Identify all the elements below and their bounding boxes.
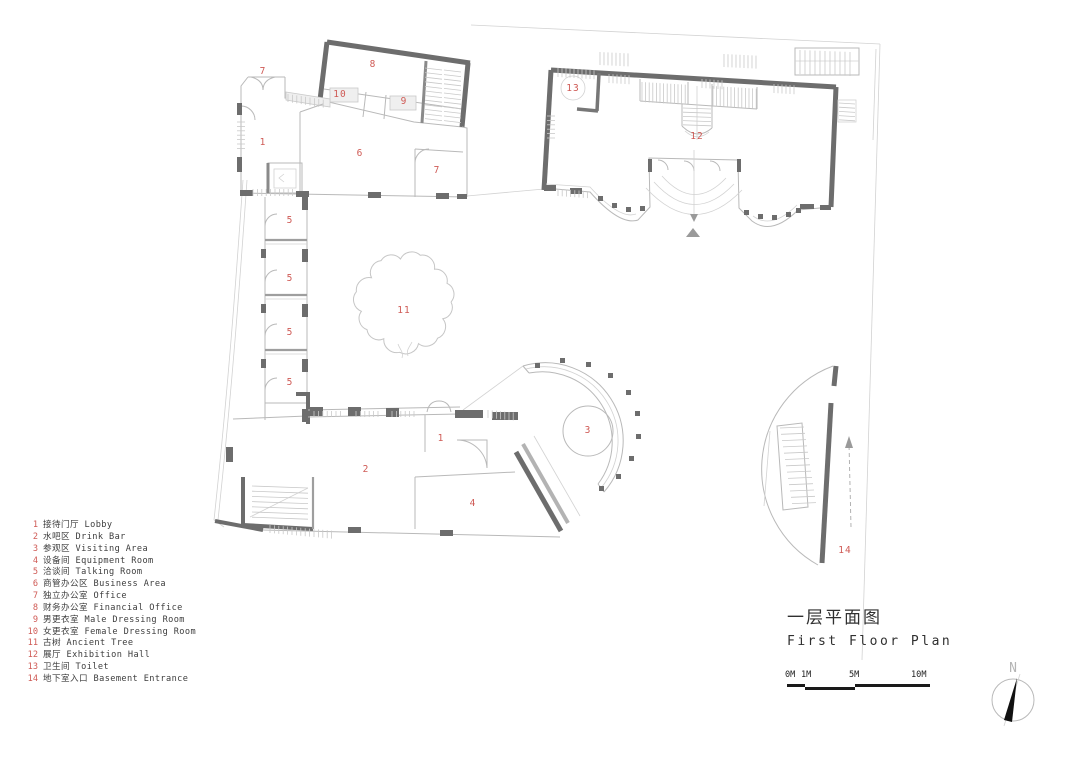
wall-segment (608, 373, 613, 378)
room-number-label: 12 (690, 131, 703, 142)
hatch-line (444, 70, 461, 72)
hatch-line (444, 121, 461, 123)
hatch-line (425, 100, 442, 102)
hatch-line (792, 503, 816, 504)
hatch-line (444, 75, 461, 77)
hatch-line (839, 103, 855, 104)
wall-segment (786, 212, 791, 217)
legend-item-number: 14 (24, 674, 38, 686)
room-number-label: 7 (260, 66, 267, 77)
room-labels: 781091312167555511312414 (260, 59, 852, 556)
legend-item: 13卫生间 Toilet (24, 662, 196, 674)
wall-segment (348, 407, 361, 416)
hatch-line (425, 114, 442, 116)
wall-segment (635, 411, 640, 416)
hatch-line (790, 490, 814, 491)
legend-item-label: 财务办公室 Financial Office (43, 603, 183, 615)
wall-segment (737, 159, 741, 172)
wall-segment (457, 194, 467, 199)
room-number-label: 5 (287, 215, 294, 226)
legend-item-number: 13 (24, 662, 38, 674)
wall-segment (348, 527, 361, 533)
wall-segment (302, 197, 308, 210)
legend-item-label: 接待门厅 Lobby (43, 520, 112, 532)
wall-segment (612, 203, 617, 208)
hatch-line (252, 486, 308, 488)
hatch-line (252, 512, 308, 514)
wall-segment (820, 205, 831, 210)
wall-segment (455, 410, 483, 418)
talking-room-corridor (265, 197, 308, 424)
scale-segment-2 (805, 687, 855, 690)
hatch-line (444, 84, 461, 86)
room-number-label: 8 (370, 59, 377, 70)
wall-segment (800, 204, 814, 209)
scale-segment-3 (855, 684, 930, 687)
wall-segment (261, 359, 266, 368)
legend-item-label: 独立办公室 Office (43, 591, 127, 603)
hatch-line (786, 465, 810, 466)
page-title-en: First Floor Plan (787, 634, 952, 649)
hatch-line (839, 107, 855, 108)
title-block: 一层平面图 First Floor Plan (787, 603, 952, 649)
wall-segment (302, 409, 308, 422)
basement-entrance (762, 366, 853, 565)
legend-item-number: 10 (24, 627, 38, 639)
legend-item-label: 古树 Ancient Tree (43, 638, 133, 650)
wall-segment (648, 159, 652, 172)
wall-segment (626, 390, 631, 395)
room-number-label: 14 (838, 545, 851, 556)
hatch-line (683, 112, 711, 113)
legend-item: 9男更衣室 Male Dressing Room (24, 615, 196, 627)
wall-segment (758, 214, 763, 219)
legend-item: 12展厅 Exhibition Hall (24, 650, 196, 662)
legend-item-number: 7 (24, 591, 38, 603)
hatch-line (425, 119, 442, 121)
page-root: 781091312167555511312414 N 1接待门厅 Lobby2水… (0, 0, 1074, 757)
scale-label-5m: 5M (849, 670, 859, 680)
legend-item-label: 商管办公区 Business Area (43, 579, 166, 591)
hatch-line (444, 107, 461, 109)
wall-segment (261, 304, 266, 313)
wall-segment (302, 359, 308, 372)
legend-item: 2水吧区 Drink Bar (24, 532, 196, 544)
legend-item-number: 1 (24, 520, 38, 532)
north-arrow: N (992, 661, 1034, 726)
hatch-line (444, 79, 461, 81)
hatch-line (683, 108, 711, 109)
room-number-label: 9 (401, 96, 408, 107)
page-title-zh: 一层平面图 (787, 603, 952, 628)
wall-segment (744, 210, 749, 215)
hatch-line (425, 73, 442, 75)
scale-label-0m: 0M (785, 670, 795, 680)
hatch-line (787, 471, 811, 472)
legend-item-number: 5 (24, 567, 38, 579)
legend-item-number: 4 (24, 556, 38, 568)
legend-item: 10女更衣室 Female Dressing Room (24, 627, 196, 639)
legend-item-label: 女更衣室 Female Dressing Room (43, 627, 196, 639)
hatch-line (683, 121, 711, 122)
room-number-label: 1 (260, 137, 267, 148)
wall-segment (440, 530, 453, 536)
compass-needle-icon (1004, 678, 1017, 722)
wall-segment (302, 304, 308, 317)
legend-item: 5洽谈间 Talking Room (24, 567, 196, 579)
legend-item: 8财务办公室 Financial Office (24, 603, 196, 615)
room-number-label: 1 (438, 433, 445, 444)
wall-segment (302, 249, 308, 262)
legend-item-number: 6 (24, 579, 38, 591)
legend-item-number: 12 (24, 650, 38, 662)
hatch-line (791, 496, 815, 497)
legend-item-label: 设备间 Equipment Room (43, 556, 154, 568)
wall-segment (598, 196, 603, 201)
main-office-block (241, 77, 544, 197)
legend-item-number: 11 (24, 638, 38, 650)
hatch-line (425, 82, 442, 84)
hatch-line (252, 517, 308, 519)
room-number-label: 10 (333, 89, 346, 100)
wall-segment (629, 456, 634, 461)
wall-segment (436, 193, 449, 199)
hatch-line (782, 440, 806, 441)
scale-bar: 0M 1M 5M 10M (787, 670, 933, 696)
wall-segment (772, 215, 777, 220)
room-number-label: 5 (287, 377, 294, 388)
wall-segment (237, 157, 242, 172)
wall-segment (636, 434, 641, 439)
wall-segment (560, 358, 565, 363)
legend-item-label: 展厅 Exhibition Hall (43, 650, 150, 662)
hatch-line (425, 77, 442, 79)
hatch-line (839, 111, 855, 112)
wall-segment (226, 447, 233, 462)
room-number-label: 5 (287, 327, 294, 338)
hatch-line (252, 507, 308, 509)
hatch-line (780, 427, 804, 428)
hatch-line (425, 86, 442, 88)
hatch-line (425, 96, 442, 98)
wall-segment (386, 408, 399, 417)
legend-item-number: 9 (24, 615, 38, 627)
hatch-line (425, 68, 442, 70)
room-number-label: 2 (363, 464, 370, 475)
hatch-line (444, 111, 461, 113)
hatch-line (252, 496, 308, 498)
wall-segment (261, 249, 266, 258)
hatch-line (789, 484, 813, 485)
wall-segment (570, 188, 582, 194)
wall-segment (535, 363, 540, 368)
hatch-line (444, 88, 461, 90)
room-number-label: 7 (434, 165, 441, 176)
wall-segment (640, 206, 645, 211)
legend-item-label: 参观区 Visiting Area (43, 544, 148, 556)
wall-segment (310, 407, 323, 416)
hatch-line (425, 109, 442, 111)
legend: 1接待门厅 Lobby2水吧区 Drink Bar3参观区 Visiting A… (24, 520, 196, 686)
legend-item: 14地下室入口 Basement Entrance (24, 674, 196, 686)
wall-segment (544, 185, 556, 191)
room-number-label: 13 (566, 83, 579, 94)
hatch-line (444, 98, 461, 100)
wall-segment (626, 207, 631, 212)
legend-item-number: 3 (24, 544, 38, 556)
wall-segment (296, 191, 309, 197)
legend-item: 3参观区 Visiting Area (24, 544, 196, 556)
hatch-line (683, 125, 711, 126)
wall-segment (237, 103, 242, 115)
room-number-label: 6 (357, 148, 364, 159)
scale-label-10m: 10M (911, 670, 927, 680)
hatch-line (444, 102, 461, 104)
legend-item-label: 地下室入口 Basement Entrance (43, 674, 188, 686)
scale-segment-1 (787, 684, 805, 687)
hatch-line (785, 459, 809, 460)
legend-item-label: 男更衣室 Male Dressing Room (43, 615, 185, 627)
wall-segment (240, 190, 253, 196)
hatch-line (781, 433, 805, 434)
room-number-label: 4 (470, 498, 477, 509)
hatch-line (839, 120, 855, 121)
north-label: N (1009, 661, 1017, 676)
legend-item-label: 卫生间 Toilet (43, 662, 109, 674)
hatch-line (839, 116, 855, 117)
legend-item: 4设备间 Equipment Room (24, 556, 196, 568)
wall-segment (616, 474, 621, 479)
ancient-tree (354, 252, 454, 354)
hatch-line (788, 477, 812, 478)
wall-segment (368, 192, 381, 198)
hatch-line (444, 116, 461, 118)
legend-item-number: 8 (24, 603, 38, 615)
legend-item-label: 水吧区 Drink Bar (43, 532, 126, 544)
legend-item: 7独立办公室 Office (24, 591, 196, 603)
hatch-line (683, 116, 711, 117)
hatch-line (425, 91, 442, 93)
legend-item: 11古树 Ancient Tree (24, 638, 196, 650)
legend-item: 1接待门厅 Lobby (24, 520, 196, 532)
wall-segment (586, 362, 591, 367)
legend-item: 6商管办公区 Business Area (24, 579, 196, 591)
room-number-label: 3 (585, 425, 592, 436)
scale-label-1m: 1M (801, 670, 811, 680)
room-number-label: 5 (287, 273, 294, 284)
lower-building (215, 415, 580, 537)
legend-item-label: 洽谈间 Talking Room (43, 567, 142, 579)
wall-segment (599, 486, 604, 491)
hatch-line (444, 93, 461, 95)
room-number-label: 11 (397, 305, 410, 316)
courtyard (307, 252, 523, 417)
tree-outline (354, 252, 454, 354)
legend-item-number: 2 (24, 532, 38, 544)
